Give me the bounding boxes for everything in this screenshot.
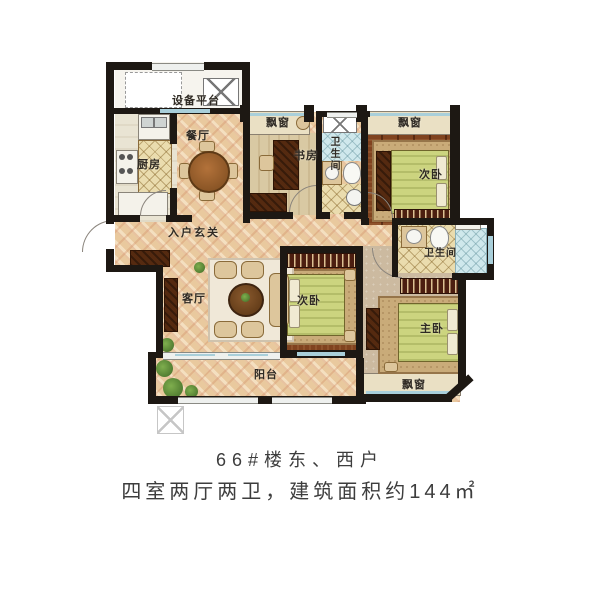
armchair xyxy=(241,261,264,279)
label-bathroom1: 卫生间 xyxy=(328,136,338,186)
label-entry-foyer: 入户玄关 xyxy=(168,228,220,239)
kitchen-sink xyxy=(141,117,154,128)
dining-table xyxy=(188,151,230,193)
tv-cabinet xyxy=(164,278,178,332)
armchair xyxy=(214,261,237,279)
window xyxy=(272,397,332,404)
wall xyxy=(316,212,330,219)
plant xyxy=(156,360,173,377)
pillow xyxy=(447,309,458,331)
wall xyxy=(392,221,398,277)
label-balcony: 阳台 xyxy=(254,370,278,381)
shower-floor xyxy=(455,228,487,275)
armchair xyxy=(214,321,237,338)
burner xyxy=(127,154,133,160)
wall xyxy=(356,246,363,358)
wall xyxy=(280,246,363,253)
plant xyxy=(163,378,183,398)
pillow xyxy=(289,305,300,328)
wall xyxy=(450,105,460,225)
plant xyxy=(194,262,205,273)
wall xyxy=(156,265,163,358)
wall xyxy=(110,62,152,70)
wall xyxy=(106,265,163,272)
wall xyxy=(356,358,364,402)
wall xyxy=(106,62,114,224)
label-bedroom2: 次卧 xyxy=(297,296,321,307)
label-equipment-platform: 设备平台 xyxy=(172,96,220,107)
window-glass xyxy=(488,236,493,264)
window-glass xyxy=(366,113,454,116)
wall xyxy=(392,218,460,225)
label-bedroom1-bay-window: 飘窗 xyxy=(398,118,422,129)
study-chair xyxy=(259,155,274,171)
wall xyxy=(452,273,494,280)
window xyxy=(178,397,258,404)
label-bedroom1: 次卧 xyxy=(419,170,443,181)
wall xyxy=(170,112,177,144)
wall xyxy=(166,215,192,222)
burner xyxy=(119,154,125,160)
window xyxy=(327,112,357,118)
study-bookshelf xyxy=(247,193,287,212)
window xyxy=(152,63,204,71)
floor-plan-page: 设备平台 餐厅 厨房 飘窗 书房 卫生间 飘窗 次卧 入户玄关 卫生间 客厅 次… xyxy=(0,0,600,600)
plant xyxy=(241,293,250,302)
label-dining-room: 餐厅 xyxy=(186,131,210,142)
wall xyxy=(243,212,293,219)
master-dresser xyxy=(366,308,380,350)
window-glass xyxy=(228,354,268,356)
burner xyxy=(119,168,125,174)
wall xyxy=(243,112,250,223)
wall xyxy=(361,218,369,225)
label-kitchen: 厨房 xyxy=(137,160,161,171)
label-master-bedroom: 主卧 xyxy=(420,324,444,335)
toilet xyxy=(430,226,449,249)
wall xyxy=(110,215,140,222)
armchair xyxy=(241,321,264,338)
wall xyxy=(170,188,177,218)
master-wardrobe xyxy=(400,278,459,294)
toilet xyxy=(343,162,361,184)
entry-door-arc xyxy=(82,220,114,252)
stool xyxy=(384,362,398,372)
nightstand xyxy=(344,269,356,281)
kitchen-sink xyxy=(154,117,167,128)
wall xyxy=(316,112,322,219)
mask xyxy=(104,272,156,356)
label-study-bay-window: 飘窗 xyxy=(266,118,290,129)
wall xyxy=(458,276,466,386)
sink xyxy=(406,229,422,244)
wall xyxy=(360,394,452,402)
label-master-bay-window: 飘窗 xyxy=(402,380,426,391)
pillow xyxy=(447,333,458,355)
caption-line1: 66#楼东、西户 xyxy=(0,446,600,472)
label-living-room: 客厅 xyxy=(182,294,206,305)
wall xyxy=(280,246,287,358)
pillow xyxy=(436,183,447,207)
caption-line2: 四室两厅两卫，建筑面积约144㎡ xyxy=(0,475,600,504)
wall xyxy=(361,112,368,225)
window-glass xyxy=(297,352,345,356)
label-bathroom2: 卫生间 xyxy=(424,249,457,259)
label-study: 书房 xyxy=(294,151,318,162)
burner xyxy=(127,168,133,174)
wall xyxy=(304,105,314,122)
outside-platform-sketch xyxy=(157,406,184,434)
mask xyxy=(104,352,148,406)
nightstand xyxy=(344,330,356,342)
study-desk xyxy=(273,140,299,190)
bedroom2-wardrobe xyxy=(287,253,356,268)
window-glass xyxy=(175,354,215,356)
window-glass xyxy=(160,109,210,113)
window-glass xyxy=(249,113,307,116)
